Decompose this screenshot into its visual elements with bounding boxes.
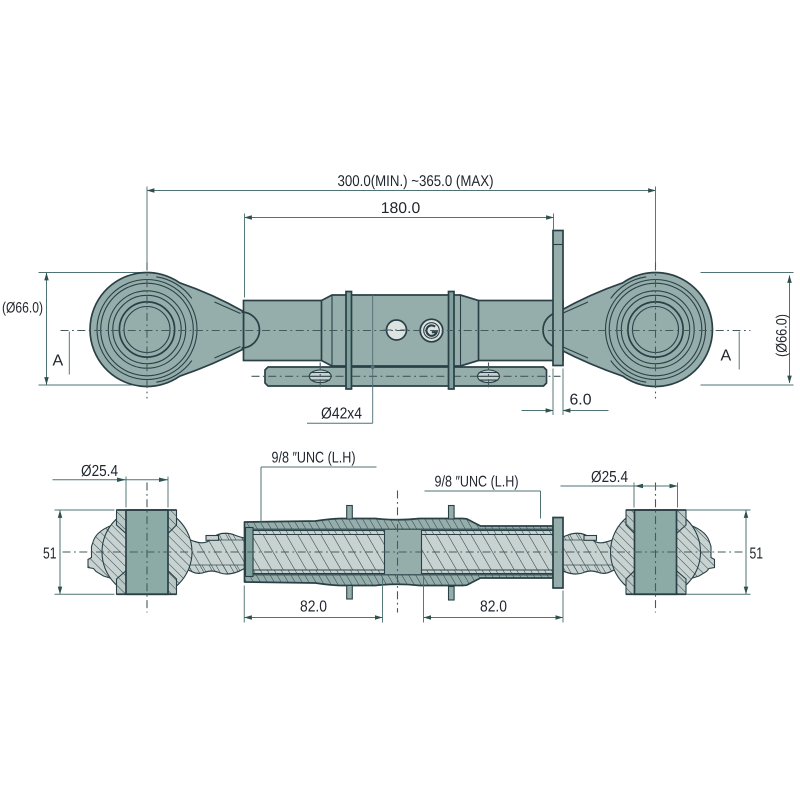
svg-text:A: A [53,353,64,370]
svg-text:180.0: 180.0 [381,200,421,217]
svg-text:A: A [721,348,732,365]
svg-text:51: 51 [750,546,764,563]
svg-text:6.0: 6.0 [570,392,592,409]
svg-text:(Ø66.0): (Ø66.0) [774,314,791,357]
svg-text:300.0(MIN.) ~365.0 (MAX): 300.0(MIN.) ~365.0 (MAX) [338,173,494,190]
svg-text:(Ø66.0): (Ø66.0) [2,300,43,317]
svg-text:9/8 ″UNC (L.H): 9/8 ″UNC (L.H) [435,474,519,491]
svg-text:82.0: 82.0 [300,599,327,616]
svg-text:Ø25.4: Ø25.4 [81,463,118,480]
svg-text:Ø42x4: Ø42x4 [321,406,362,423]
svg-text:9/8 ″UNC (L.H): 9/8 ″UNC (L.H) [272,450,356,467]
svg-text:82.0: 82.0 [480,599,507,616]
svg-text:Ø25.4: Ø25.4 [591,469,628,486]
svg-text:51: 51 [43,546,57,563]
